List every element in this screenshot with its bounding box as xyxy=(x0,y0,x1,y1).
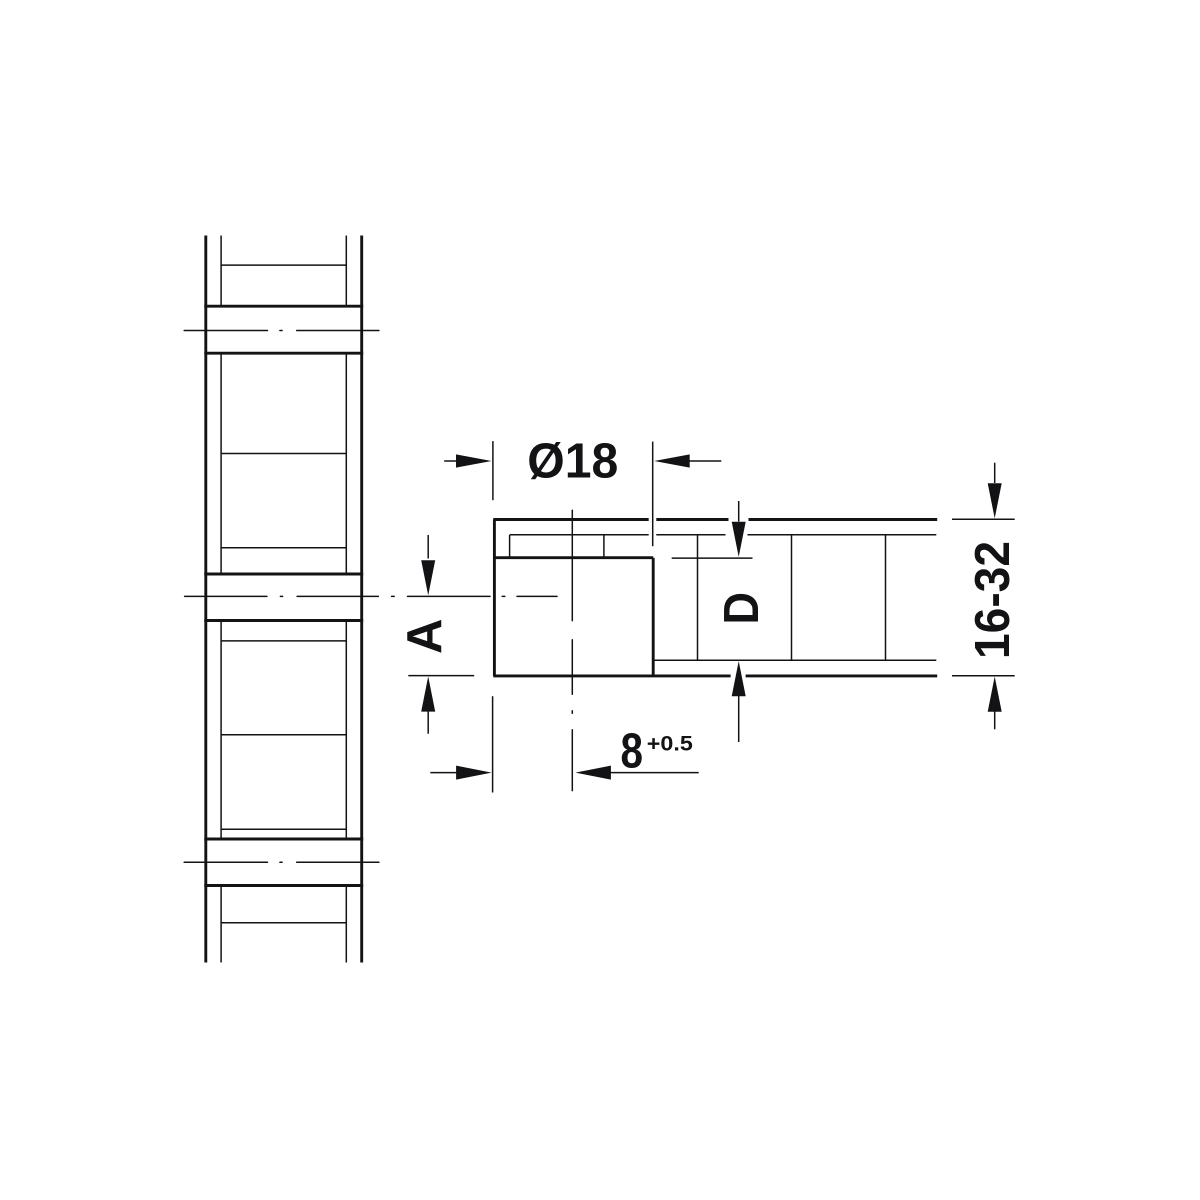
svg-text:8: 8 xyxy=(621,725,644,779)
svg-text:16-32: 16-32 xyxy=(966,541,1020,659)
svg-text:+0.5: +0.5 xyxy=(647,731,693,755)
svg-text:A: A xyxy=(398,619,452,654)
svg-text:Ø18: Ø18 xyxy=(527,435,618,489)
svg-text:D: D xyxy=(715,592,769,625)
